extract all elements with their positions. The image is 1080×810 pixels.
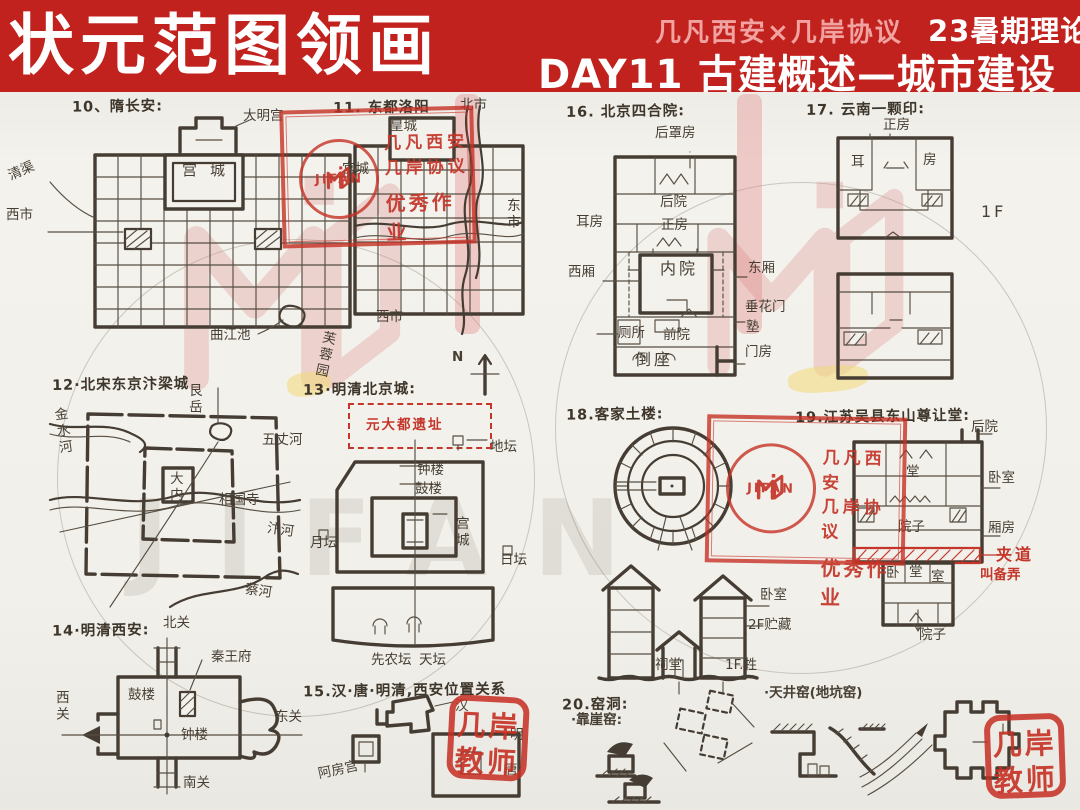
label-yuanzi2: 院子 <box>919 628 946 643</box>
label-jiadao: 夹道 <box>996 546 1034 564</box>
label-ritan: 日坛 <box>500 553 527 568</box>
sketch-20-entry-ramp <box>858 717 938 797</box>
label-tang2: 堂 <box>909 565 923 580</box>
label-shi: 室 <box>931 570 945 585</box>
label-xishi-11: 西市 <box>376 310 403 325</box>
jifan-cube-icon <box>322 165 357 194</box>
label-woshi-18: 卧室 <box>760 588 787 603</box>
label-cesuo: 厕所 <box>618 326 645 341</box>
excellent-work-stamp: JIFAN 几凡西安 几岸协议 优秀作业 <box>705 414 908 565</box>
label-xiguan: 西关 <box>53 690 68 723</box>
label-qujiangchi: 曲江池 <box>210 328 251 343</box>
label-sheng: 1F.牲 <box>725 658 757 673</box>
label-wuzhanghe: 五丈河 <box>262 433 303 448</box>
excellent-work-stamp: JIFAN 几凡西安 几岸协议 优秀作业 <box>279 105 477 248</box>
label-dongguan: 东关 <box>275 710 302 725</box>
label-beilong: 叫备弄 <box>980 568 1021 583</box>
sketch-14-drawing <box>50 632 310 800</box>
label-tiantan: 天坛 <box>419 653 446 668</box>
stamp-line-1: 几凡西安 <box>822 446 903 497</box>
label-gongcheng-13: 宫城 <box>453 516 468 549</box>
label-neiyuan: 内院 <box>660 260 698 278</box>
label-xiangguosi: 相国寺 <box>219 493 260 508</box>
label-dongshi: 东市 <box>504 198 519 231</box>
stamp-line-2: 几岸协议 <box>821 496 902 547</box>
stamp-line-3: 优秀作业 <box>820 552 901 611</box>
teacher-stamp-line-1: 几岸 <box>454 706 524 746</box>
label-north: N <box>452 350 463 365</box>
teacher-stamp-line-2: 教师 <box>991 761 1060 800</box>
label-beiguan: 北关 <box>163 616 190 631</box>
paper: JIFAN 10、隋长安: 大明宫 宫城 清渠 西市 曲江池 芙蓉园 11. 东… <box>0 92 1080 810</box>
label-daozuo: 倒座 <box>635 351 673 369</box>
label-houyuan-16: 后院 <box>660 195 687 210</box>
sketch-17-drawing <box>830 132 962 394</box>
jifan-cube-icon <box>752 472 791 505</box>
compass-north-mark <box>467 350 503 396</box>
label-houyuan-19: 后院 <box>971 420 998 435</box>
stamp-line-2: 几岸协议 <box>384 154 471 181</box>
sketch-20-sunken-plan <box>660 685 758 783</box>
label-qianyuan: 前院 <box>663 328 690 343</box>
label-kaoyayao: ·靠崖窑: <box>571 713 622 728</box>
teacher-stamp: 几岸 教师 <box>984 713 1067 800</box>
sketch-16-title: 16. 北京四合院: <box>566 99 685 122</box>
label-gongcheng-10: 宫城 <box>182 162 238 179</box>
stamp-line-3: 优秀作业 <box>385 186 472 246</box>
label-1f: 1F <box>981 203 1006 221</box>
teacher-stamp: 几岸 教师 <box>446 694 530 782</box>
page-title: 状元范图领画 <box>8 2 440 90</box>
label-xiannongtan: 先农坛 <box>371 653 412 668</box>
label-xiangfang: 厢房 <box>988 521 1015 536</box>
label-dongxiang: 东厢 <box>748 261 775 276</box>
label-woshi-19: 卧室 <box>988 471 1015 486</box>
teacher-stamp-line-2: 教师 <box>452 742 522 782</box>
teacher-stamp-line-1: 几岸 <box>990 725 1059 764</box>
label-gulou-14: 鼓楼 <box>128 688 155 703</box>
label-tianjingyao: ·天井窑(地坑窑) <box>764 686 862 701</box>
label-zhengfang-17: 正房 <box>883 118 910 133</box>
label-gulou-13: 鼓楼 <box>415 482 442 497</box>
stamp-line-1: 几凡西安 <box>384 130 471 157</box>
label-erfang-16: 耳房 <box>576 215 603 230</box>
label-zhonglou-13: 钟楼 <box>417 463 444 478</box>
label-zhengfang-16: 正房 <box>661 218 688 233</box>
label-xixiang: 西厢 <box>568 265 595 280</box>
label-nanguan: 南关 <box>183 776 210 791</box>
sketch-13-title: 13·明清北京城: <box>303 377 416 400</box>
label-genyue: 艮岳 <box>186 383 201 416</box>
label-zhucang: 2F贮藏 <box>748 618 791 633</box>
scanned-study-sheet: 状元范图领画 几凡西安×几岸协议 23暑期理论 DAY11 古建概述—城市建设 … <box>0 0 1080 810</box>
header-banner: 状元范图领画 几凡西安×几岸协议 23暑期理论 DAY11 古建概述—城市建设 <box>0 0 1080 92</box>
label-qinwangfu: 秦王府 <box>211 650 252 665</box>
label-yuetan: 月坛 <box>310 536 337 551</box>
label-ditan: 地坛 <box>490 440 517 455</box>
label-tang-19: 堂 <box>906 465 920 480</box>
label-menfang: 门房 <box>745 345 772 360</box>
label-zhonglou-14: 钟楼 <box>181 728 208 743</box>
label-citang: 祠堂 <box>655 658 682 673</box>
label-chuihuamen: 垂花门 <box>745 300 786 315</box>
label-danei: 大内 <box>167 471 182 504</box>
label-houzhaofang: 后罩房 <box>655 126 696 141</box>
label-er: 耳 <box>851 155 865 170</box>
label-xishi-10: 西市 <box>6 208 33 223</box>
label-shu: 塾 <box>746 320 760 335</box>
label-damingong: 大明宫 <box>243 109 284 124</box>
label-fang: 房 <box>923 153 937 168</box>
